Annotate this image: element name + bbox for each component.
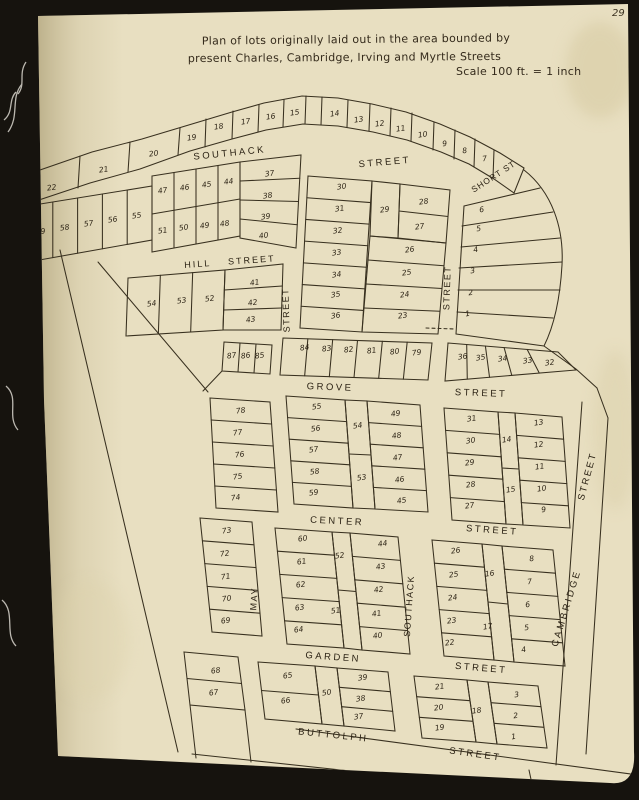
lot-number-23: 23 bbox=[446, 615, 457, 625]
lot-number-62: 62 bbox=[295, 579, 306, 589]
lot-number-35: 35 bbox=[475, 352, 486, 362]
lot-number-15: 15 bbox=[289, 107, 300, 117]
lot-number-58: 58 bbox=[309, 466, 320, 476]
lot-number-40: 40 bbox=[258, 230, 269, 240]
lot-number-31: 31 bbox=[334, 203, 345, 213]
lot-number-12: 12 bbox=[374, 118, 385, 128]
lot-number-40: 40 bbox=[372, 630, 383, 640]
lot-number-69: 69 bbox=[220, 615, 231, 625]
lot-number-39: 39 bbox=[260, 211, 271, 221]
lot-number-18: 18 bbox=[471, 705, 482, 715]
lot-number-29: 29 bbox=[379, 204, 390, 214]
paper-sheet bbox=[38, 4, 634, 783]
lot-number-37: 37 bbox=[353, 711, 364, 721]
lot-number-36: 36 bbox=[457, 351, 468, 361]
map-linework bbox=[467, 345, 468, 380]
lot-number-57: 57 bbox=[308, 444, 319, 454]
lot-number-10: 10 bbox=[417, 129, 428, 139]
lot-number-21: 21 bbox=[434, 681, 445, 691]
lot-number-36: 36 bbox=[330, 310, 341, 320]
lot-number-44: 44 bbox=[377, 538, 388, 548]
lot-number-54: 54 bbox=[146, 298, 157, 308]
lot-number-21: 21 bbox=[98, 164, 109, 174]
lot-number-65: 65 bbox=[282, 670, 293, 680]
street-label-grove: GROVE bbox=[307, 381, 354, 394]
lot-number-47: 47 bbox=[157, 185, 168, 195]
lot-number-48: 48 bbox=[219, 218, 230, 228]
lot-number-79: 79 bbox=[411, 347, 422, 357]
street-label-street: STREET bbox=[455, 387, 508, 400]
lot-number-73: 73 bbox=[221, 525, 232, 535]
lot-number-28: 28 bbox=[418, 196, 429, 206]
lot-number-75: 75 bbox=[232, 471, 243, 481]
lot-number-13: 13 bbox=[353, 114, 364, 124]
lot-number-43: 43 bbox=[245, 314, 256, 324]
lot-number-24: 24 bbox=[447, 592, 458, 602]
lot-number-53: 53 bbox=[356, 472, 367, 482]
lot-number-13: 13 bbox=[533, 417, 544, 427]
lot-number-43: 43 bbox=[375, 561, 386, 571]
lot-number-49: 49 bbox=[390, 408, 401, 418]
lot-number-56: 56 bbox=[107, 214, 118, 224]
lot-number-32: 32 bbox=[332, 225, 343, 235]
lot-number-44: 44 bbox=[223, 176, 234, 186]
lot-number-85: 85 bbox=[254, 350, 265, 360]
lot-number-58: 58 bbox=[59, 222, 70, 232]
lot-number-28: 28 bbox=[465, 479, 476, 489]
lot-number-71: 71 bbox=[220, 571, 231, 581]
lot-number-14: 14 bbox=[329, 108, 340, 118]
lot-number-72: 72 bbox=[219, 548, 230, 558]
page-number: 29 bbox=[612, 8, 625, 19]
lot-number-16: 16 bbox=[265, 111, 276, 121]
lot-number-46: 46 bbox=[394, 474, 405, 484]
lot-number-52: 52 bbox=[334, 550, 345, 560]
lot-number-86: 86 bbox=[240, 350, 251, 360]
lot-number-64: 64 bbox=[293, 624, 304, 634]
lot-number-29: 29 bbox=[464, 457, 475, 467]
street-label-hill: HILL bbox=[184, 258, 212, 270]
lot-number-33: 33 bbox=[331, 247, 342, 257]
lot-number-23: 23 bbox=[397, 310, 408, 320]
lot-number-15: 15 bbox=[505, 484, 516, 494]
lot-number-87: 87 bbox=[226, 350, 237, 360]
lot-number-37: 37 bbox=[264, 168, 275, 178]
lot-number-16: 16 bbox=[484, 568, 495, 578]
lot-number-74: 74 bbox=[230, 492, 241, 502]
map-linework bbox=[36, 170, 40, 201]
lot-number-49: 49 bbox=[199, 220, 210, 230]
lot-number-53: 53 bbox=[176, 295, 187, 305]
lot-number-60: 60 bbox=[297, 533, 308, 543]
lot-number-34: 34 bbox=[497, 353, 508, 363]
paper-stain bbox=[50, 580, 130, 700]
lot-number-59: 59 bbox=[308, 487, 319, 497]
lot-number-54: 54 bbox=[352, 420, 363, 430]
lot-number-45: 45 bbox=[396, 495, 407, 505]
lot-number-70: 70 bbox=[221, 593, 232, 603]
street-label-street: STREET bbox=[280, 288, 292, 333]
lot-number-52: 52 bbox=[204, 293, 215, 303]
lot-number-80: 80 bbox=[389, 346, 400, 356]
lot-number-17: 17 bbox=[240, 116, 251, 126]
lot-number-76: 76 bbox=[234, 449, 245, 459]
lot-number-30: 30 bbox=[465, 435, 476, 445]
lot-number-14: 14 bbox=[501, 434, 512, 444]
lot-number-20: 20 bbox=[148, 148, 159, 158]
lot-number-22: 22 bbox=[444, 637, 455, 647]
lot-number-45: 45 bbox=[201, 179, 212, 189]
lot-number-34: 34 bbox=[331, 269, 342, 279]
lot-number-26: 26 bbox=[450, 545, 461, 555]
lot-number-31: 31 bbox=[466, 413, 477, 423]
lot-number-32: 32 bbox=[544, 357, 555, 367]
lot-number-22: 22 bbox=[46, 182, 57, 192]
photo-of-atlas-page: SOUTHACKSTREETSHORT STHILLSTREETSTREETST… bbox=[0, 0, 639, 800]
lot-number-38: 38 bbox=[355, 693, 366, 703]
lot-number-67: 67 bbox=[208, 687, 219, 697]
lot-number-41: 41 bbox=[371, 608, 382, 618]
lot-number-77: 77 bbox=[232, 427, 243, 437]
lot-number-27: 27 bbox=[414, 221, 425, 231]
lot-number-38: 38 bbox=[262, 190, 273, 200]
lot-number-39: 39 bbox=[357, 672, 368, 682]
lot-number-83: 83 bbox=[321, 343, 332, 353]
lot-number-50: 50 bbox=[178, 222, 189, 232]
map-title-line2: present Charles, Cambridge, Irving and M… bbox=[172, 50, 517, 65]
lot-number-19: 19 bbox=[186, 132, 197, 142]
lot-number-41: 41 bbox=[249, 277, 260, 287]
lot-number-25: 25 bbox=[448, 569, 459, 579]
street-label-may: MAY bbox=[248, 587, 260, 611]
lot-number-20: 20 bbox=[433, 702, 444, 712]
lot-number-25: 25 bbox=[401, 267, 412, 277]
lot-number-10: 10 bbox=[536, 483, 547, 493]
lot-number-19: 19 bbox=[434, 722, 445, 732]
lot-number-27: 27 bbox=[464, 500, 475, 510]
lot-number-18: 18 bbox=[213, 121, 224, 131]
lot-number-84: 84 bbox=[299, 342, 310, 352]
binding-threads bbox=[2, 62, 26, 646]
lot-number-48: 48 bbox=[391, 430, 402, 440]
lot-number-81: 81 bbox=[366, 345, 377, 355]
lot-number-33: 33 bbox=[522, 355, 533, 365]
street-label-street: STREET bbox=[441, 265, 453, 310]
lot-number-55: 55 bbox=[311, 401, 322, 411]
lot-number-61: 61 bbox=[296, 556, 307, 566]
lot-number-68: 68 bbox=[210, 665, 221, 675]
lot-number-11: 11 bbox=[395, 123, 406, 133]
lot-number-47: 47 bbox=[392, 452, 403, 462]
map-scale-note: Scale 100 ft. = 1 inch bbox=[456, 65, 581, 78]
lot-number-12: 12 bbox=[533, 439, 544, 449]
lot-number-59: 59 bbox=[35, 226, 46, 236]
lot-number-57: 57 bbox=[83, 218, 94, 228]
lot-number-51: 51 bbox=[157, 225, 168, 235]
lot-number-26: 26 bbox=[404, 244, 415, 254]
lot-number-51: 51 bbox=[330, 605, 341, 615]
lot-number-46: 46 bbox=[179, 182, 190, 192]
lot-number-55: 55 bbox=[131, 210, 142, 220]
lot-number-63: 63 bbox=[294, 602, 305, 612]
paper-stain bbox=[593, 350, 637, 510]
lot-number-35: 35 bbox=[330, 289, 341, 299]
lot-number-50: 50 bbox=[321, 687, 332, 697]
lot-number-30: 30 bbox=[336, 181, 347, 191]
lot-number-42: 42 bbox=[373, 584, 384, 594]
lot-number-11: 11 bbox=[534, 461, 545, 471]
lot-number-42: 42 bbox=[247, 297, 258, 307]
lot-number-56: 56 bbox=[310, 423, 321, 433]
lot-number-82: 82 bbox=[343, 344, 354, 354]
lot-number-66: 66 bbox=[280, 695, 291, 705]
lot-number-24: 24 bbox=[399, 289, 410, 299]
lot-number-17: 17 bbox=[482, 621, 493, 631]
lot-number-78: 78 bbox=[235, 405, 246, 415]
plat-map-svg: SOUTHACKSTREETSHORT STHILLSTREETSTREETST… bbox=[0, 0, 639, 800]
